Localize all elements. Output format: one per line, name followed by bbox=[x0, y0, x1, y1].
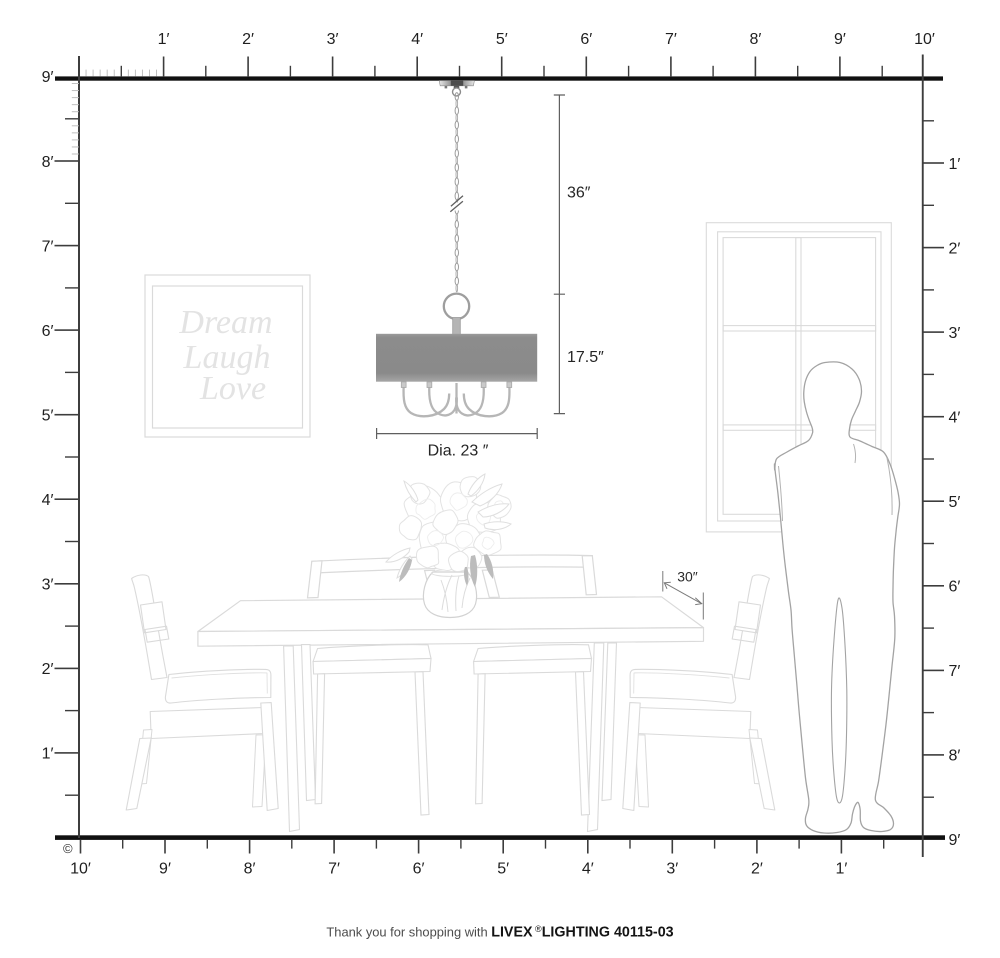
svg-text:10′: 10′ bbox=[914, 31, 935, 48]
svg-text:9′: 9′ bbox=[159, 861, 171, 878]
svg-text:9′: 9′ bbox=[42, 69, 54, 86]
svg-text:Dia. 23 ″: Dia. 23 ″ bbox=[428, 443, 489, 460]
svg-text:4′: 4′ bbox=[949, 409, 961, 426]
svg-text:8′: 8′ bbox=[244, 861, 256, 878]
svg-text:8′: 8′ bbox=[42, 154, 54, 171]
svg-text:8′: 8′ bbox=[949, 748, 961, 765]
svg-text:©: © bbox=[63, 841, 73, 856]
svg-text:6′: 6′ bbox=[580, 31, 592, 48]
svg-text:4′: 4′ bbox=[582, 861, 594, 878]
svg-text:Love: Love bbox=[199, 370, 266, 407]
svg-text:2′: 2′ bbox=[949, 240, 961, 257]
svg-text:1′: 1′ bbox=[949, 156, 961, 173]
svg-text:2′: 2′ bbox=[42, 661, 54, 678]
svg-text:6′: 6′ bbox=[413, 861, 425, 878]
svg-text:30″: 30″ bbox=[677, 569, 698, 585]
svg-text:2′: 2′ bbox=[751, 861, 763, 878]
svg-text:3′: 3′ bbox=[949, 325, 961, 342]
svg-text:1′: 1′ bbox=[158, 31, 170, 48]
svg-text:1′: 1′ bbox=[835, 861, 847, 878]
svg-text:Thank you for shopping with LI: Thank you for shopping with LIVEX ®LIGHT… bbox=[326, 924, 673, 941]
svg-text:6′: 6′ bbox=[42, 323, 54, 340]
svg-text:3′: 3′ bbox=[327, 31, 339, 48]
svg-text:17.5″: 17.5″ bbox=[567, 349, 604, 366]
svg-text:3′: 3′ bbox=[42, 577, 54, 594]
svg-text:10′: 10′ bbox=[70, 861, 91, 878]
svg-text:7′: 7′ bbox=[665, 31, 677, 48]
svg-text:9′: 9′ bbox=[834, 31, 846, 48]
svg-text:5′: 5′ bbox=[496, 31, 508, 48]
svg-text:2′: 2′ bbox=[242, 31, 254, 48]
svg-text:4′: 4′ bbox=[42, 492, 54, 509]
svg-text:7′: 7′ bbox=[42, 238, 54, 255]
svg-text:5′: 5′ bbox=[497, 861, 509, 878]
svg-text:Dream: Dream bbox=[178, 304, 272, 341]
svg-text:3′: 3′ bbox=[666, 861, 678, 878]
svg-text:5′: 5′ bbox=[949, 494, 961, 511]
svg-text:1′: 1′ bbox=[42, 746, 54, 763]
svg-text:6′: 6′ bbox=[949, 579, 961, 596]
svg-text:7′: 7′ bbox=[949, 663, 961, 680]
svg-text:5′: 5′ bbox=[42, 407, 54, 424]
svg-text:36″: 36″ bbox=[567, 185, 591, 202]
svg-text:8′: 8′ bbox=[749, 31, 761, 48]
svg-text:7′: 7′ bbox=[328, 861, 340, 878]
svg-text:9′: 9′ bbox=[949, 832, 961, 849]
svg-text:4′: 4′ bbox=[411, 31, 423, 48]
